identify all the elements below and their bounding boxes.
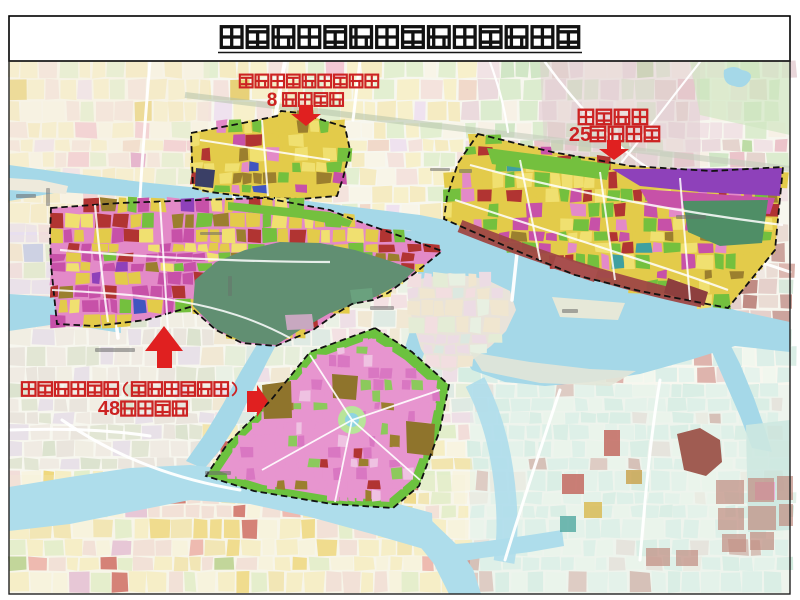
svg-text:25: 25: [569, 124, 591, 146]
svg-text:8: 8: [267, 90, 278, 111]
svg-text:48: 48: [98, 398, 120, 420]
